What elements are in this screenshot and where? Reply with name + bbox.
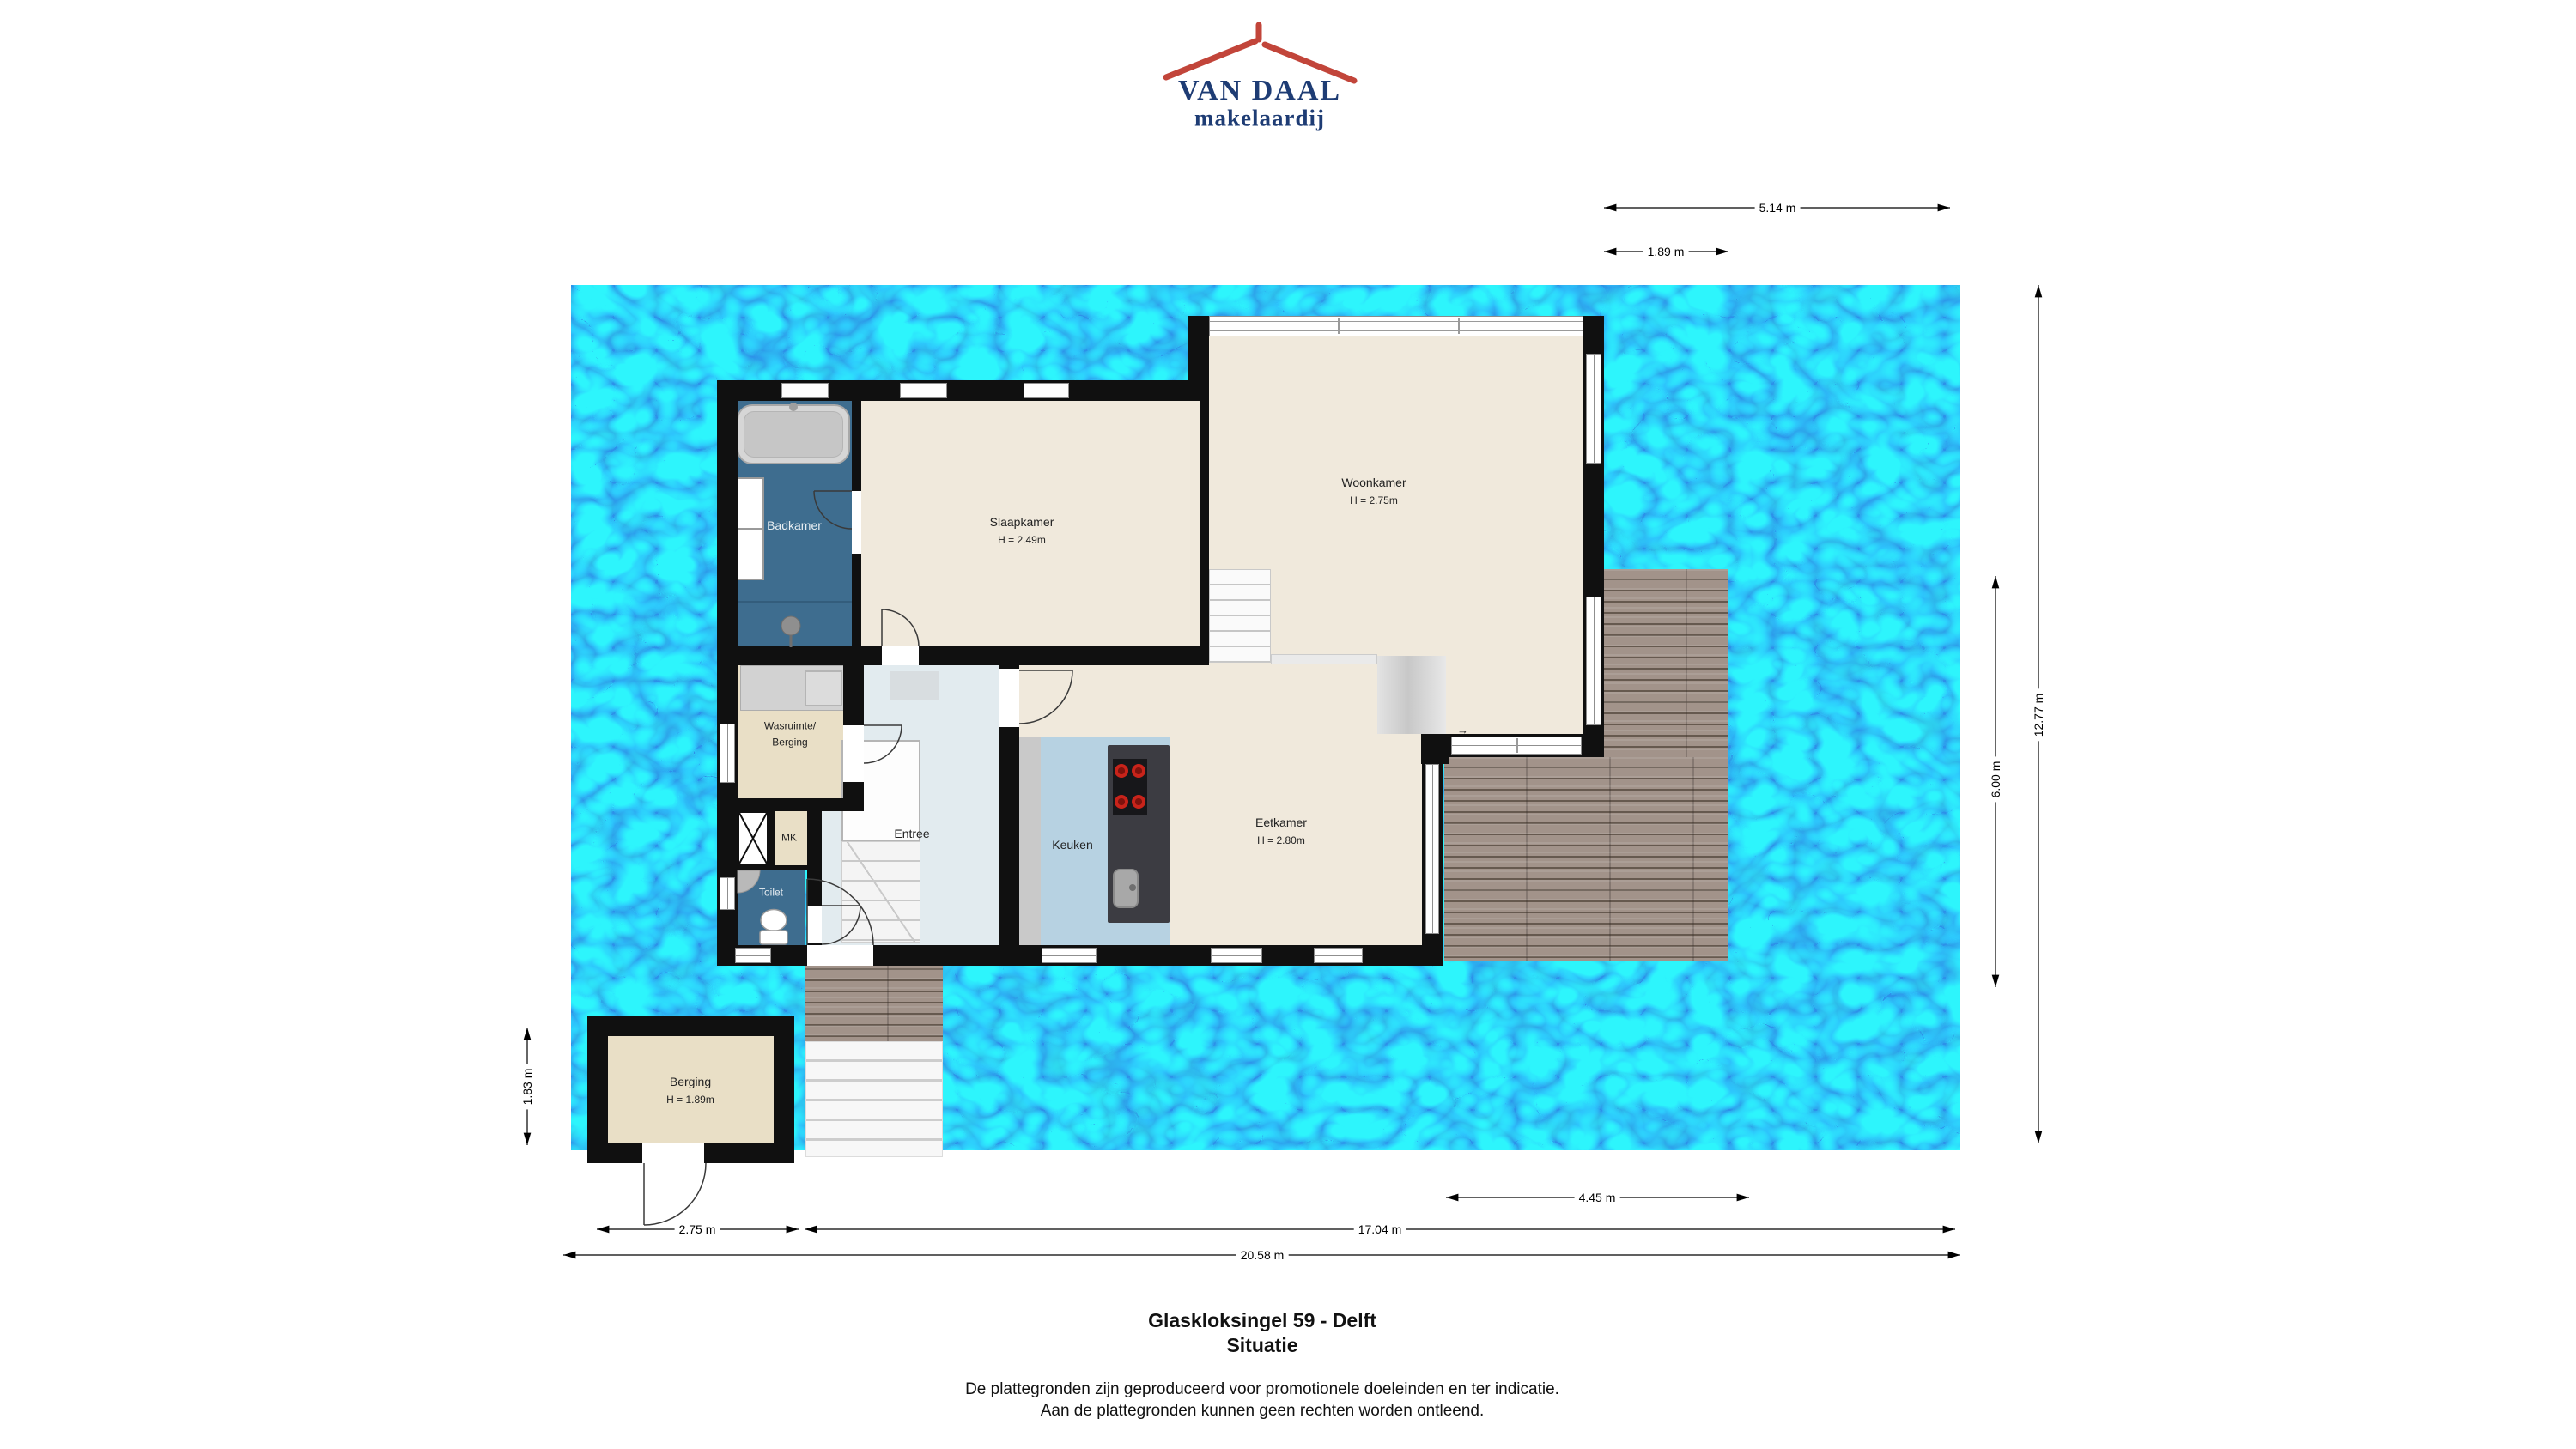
page-title: Glaskloksingel 59 - Delft xyxy=(0,1308,2524,1333)
floorplan-canvas: → Badkamer Slaapkamer H xyxy=(0,0,2576,1449)
dim-label-top-outer: 5.14 m xyxy=(1755,201,1801,215)
dim-label-top-inner: 1.89 m xyxy=(1643,245,1689,258)
disclaimer-line2: Aan de plattegronden kunnen geen rechten… xyxy=(0,1400,2524,1422)
dim-label-left-berging: 1.83 m xyxy=(520,1064,534,1110)
logo-name: VAN DAAL xyxy=(1178,75,1341,107)
logo-tagline: makelaardij xyxy=(1194,106,1325,132)
footer: Glaskloksingel 59 - Delft Situatie De pl… xyxy=(0,1308,2524,1422)
disclaimer: De plattegronden zijn geproduceerd voor … xyxy=(0,1379,2524,1422)
dim-label-right-inner: 6.00 m xyxy=(1989,757,2002,803)
dim-label-bottom-total: 20.58 m xyxy=(1236,1248,1289,1262)
sheet-title: Situatie xyxy=(0,1333,2524,1358)
dim-label-right-outer: 12.77 m xyxy=(2032,689,2045,742)
agency-logo: VAN DAAL makelaardij xyxy=(1151,17,1374,137)
dimension-lines xyxy=(0,0,2576,1449)
dim-label-bottom-house: 17.04 m xyxy=(1354,1222,1406,1236)
disclaimer-line1: De plattegronden zijn geproduceerd voor … xyxy=(0,1379,2524,1401)
dim-label-bottom-terrace: 4.45 m xyxy=(1575,1191,1620,1204)
dim-label-bottom-berging: 2.75 m xyxy=(675,1222,720,1236)
